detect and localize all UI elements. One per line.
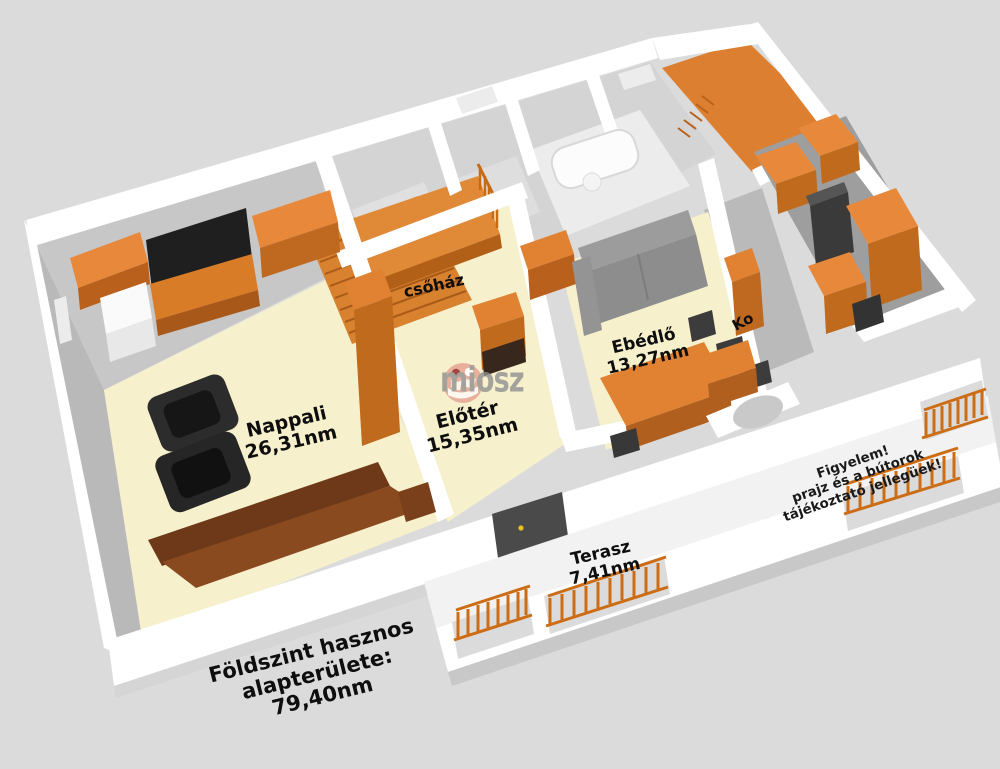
floorplan-screenshot: Nappali 26,31nm Előtér 15,35nm csőház Eb…	[0, 0, 1000, 769]
door-handle	[518, 525, 523, 530]
watermark-text: miosz	[440, 359, 524, 400]
watermark: miosz	[440, 360, 542, 399]
